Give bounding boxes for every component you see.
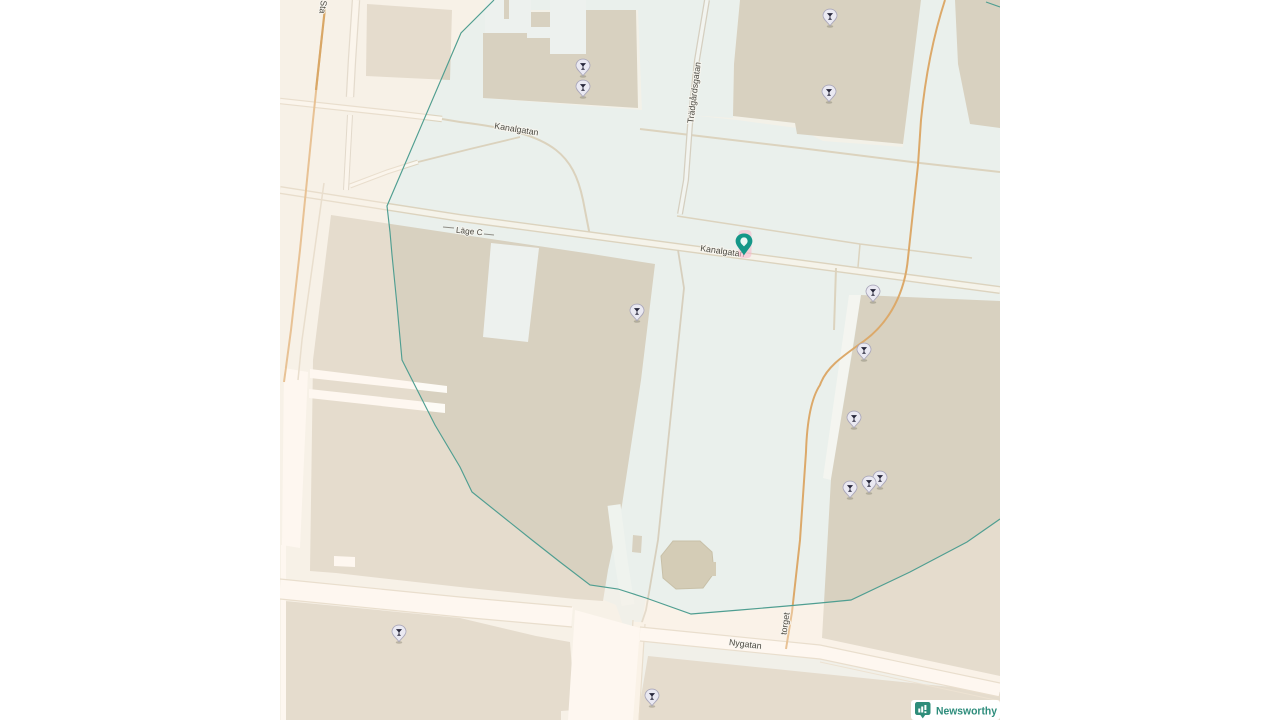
svg-text:Sta: Sta bbox=[317, 0, 329, 14]
svg-text:Newsworthy: Newsworthy bbox=[936, 706, 998, 718]
